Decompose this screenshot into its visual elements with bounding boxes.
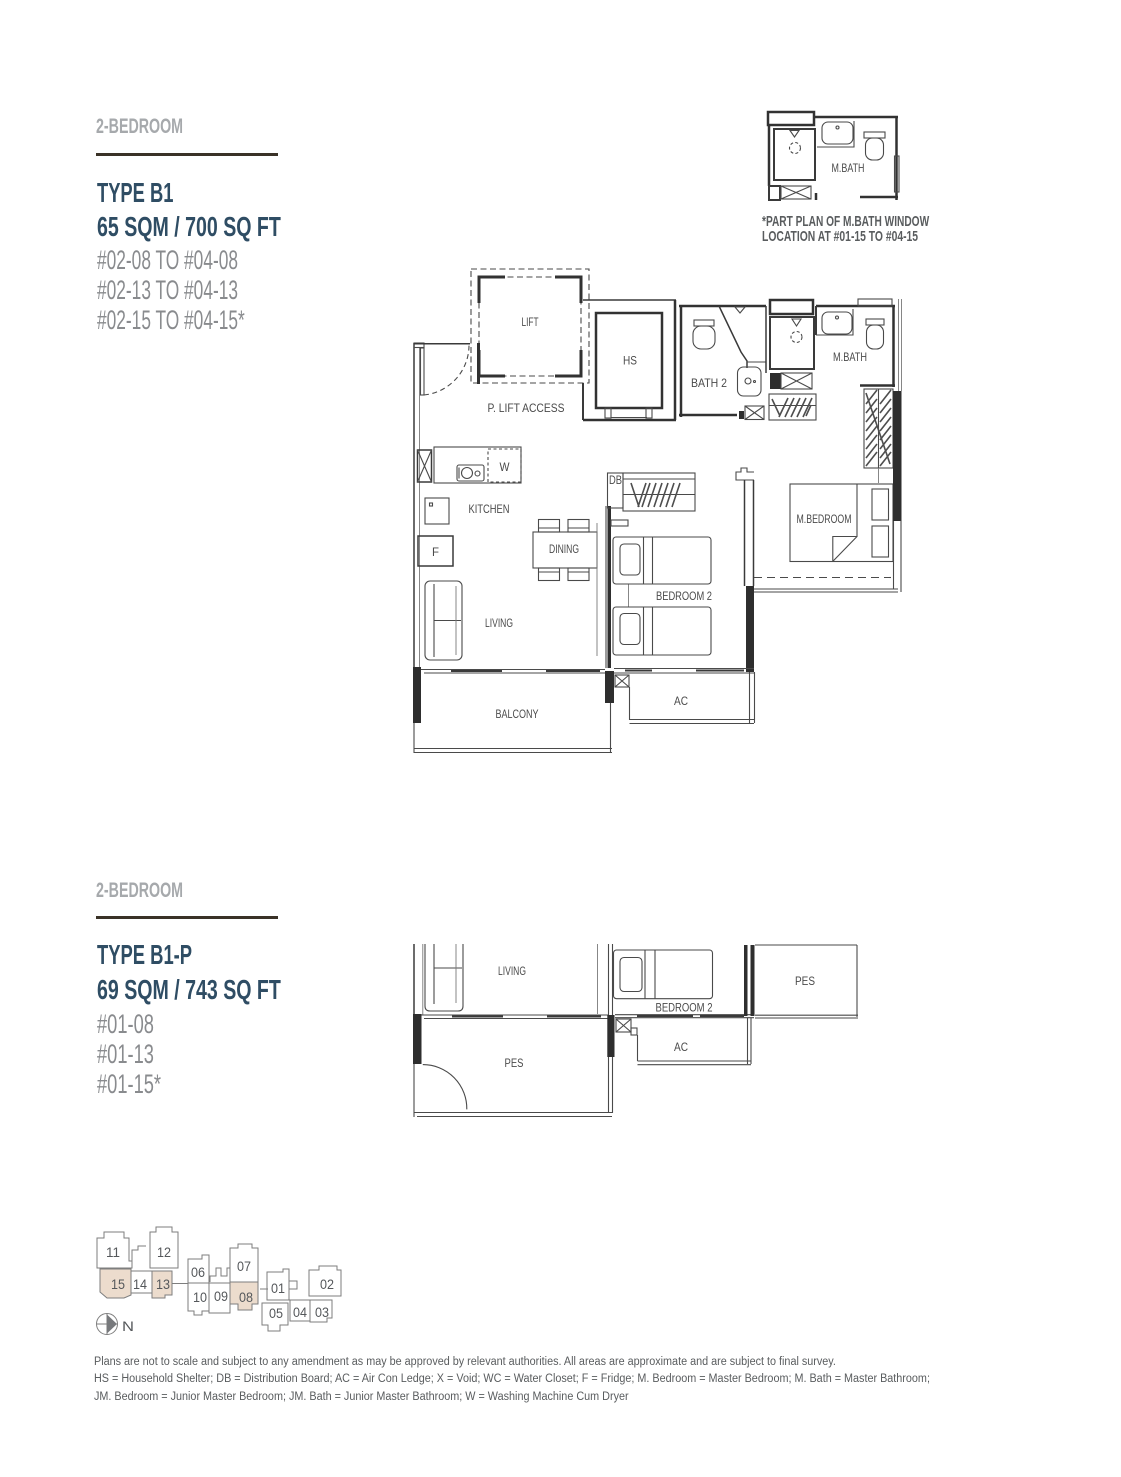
svg-text:05: 05: [269, 1305, 283, 1321]
svg-text:13: 13: [156, 1276, 170, 1292]
svg-text:BEDROOM 2: BEDROOM 2: [656, 1001, 713, 1015]
svg-text:10: 10: [193, 1289, 207, 1305]
svg-text:HS: HS: [623, 354, 637, 368]
svg-text:15: 15: [111, 1276, 125, 1292]
svg-text:PES: PES: [795, 974, 815, 988]
svg-text:DINING: DINING: [549, 542, 579, 556]
svg-text:N: N: [122, 1318, 134, 1334]
svg-text:P. LIFT ACCESS: P. LIFT ACCESS: [488, 401, 565, 415]
svg-text:12: 12: [157, 1244, 171, 1260]
svg-text:LIVING: LIVING: [485, 616, 513, 630]
svg-text:BALCONY: BALCONY: [496, 707, 539, 721]
svg-text:AC: AC: [674, 1040, 688, 1054]
svg-text:LIFT: LIFT: [522, 315, 539, 329]
svg-text:AC: AC: [674, 694, 688, 708]
svg-text:PES: PES: [505, 1056, 524, 1070]
svg-text:BATH 2: BATH 2: [691, 376, 727, 390]
svg-text:08: 08: [239, 1289, 253, 1305]
svg-text:DB: DB: [609, 473, 622, 487]
svg-text:14: 14: [133, 1276, 147, 1292]
svg-text:11: 11: [106, 1244, 120, 1260]
svg-text:09: 09: [214, 1288, 228, 1304]
svg-text:04: 04: [293, 1304, 307, 1320]
svg-text:BEDROOM 2: BEDROOM 2: [656, 589, 712, 603]
svg-text:01: 01: [271, 1280, 285, 1296]
svg-text:02: 02: [320, 1276, 334, 1292]
svg-text:M.BATH: M.BATH: [832, 161, 865, 175]
svg-text:W: W: [500, 460, 511, 474]
svg-text:F: F: [432, 545, 439, 559]
svg-text:KITCHEN: KITCHEN: [469, 502, 510, 516]
svg-text:03: 03: [315, 1304, 329, 1320]
svg-text:06: 06: [191, 1264, 205, 1280]
svg-text:07: 07: [237, 1258, 251, 1274]
svg-text:LIVING: LIVING: [498, 964, 526, 978]
svg-text:M.BATH: M.BATH: [833, 350, 867, 364]
svg-text:M.BEDROOM: M.BEDROOM: [797, 512, 852, 526]
